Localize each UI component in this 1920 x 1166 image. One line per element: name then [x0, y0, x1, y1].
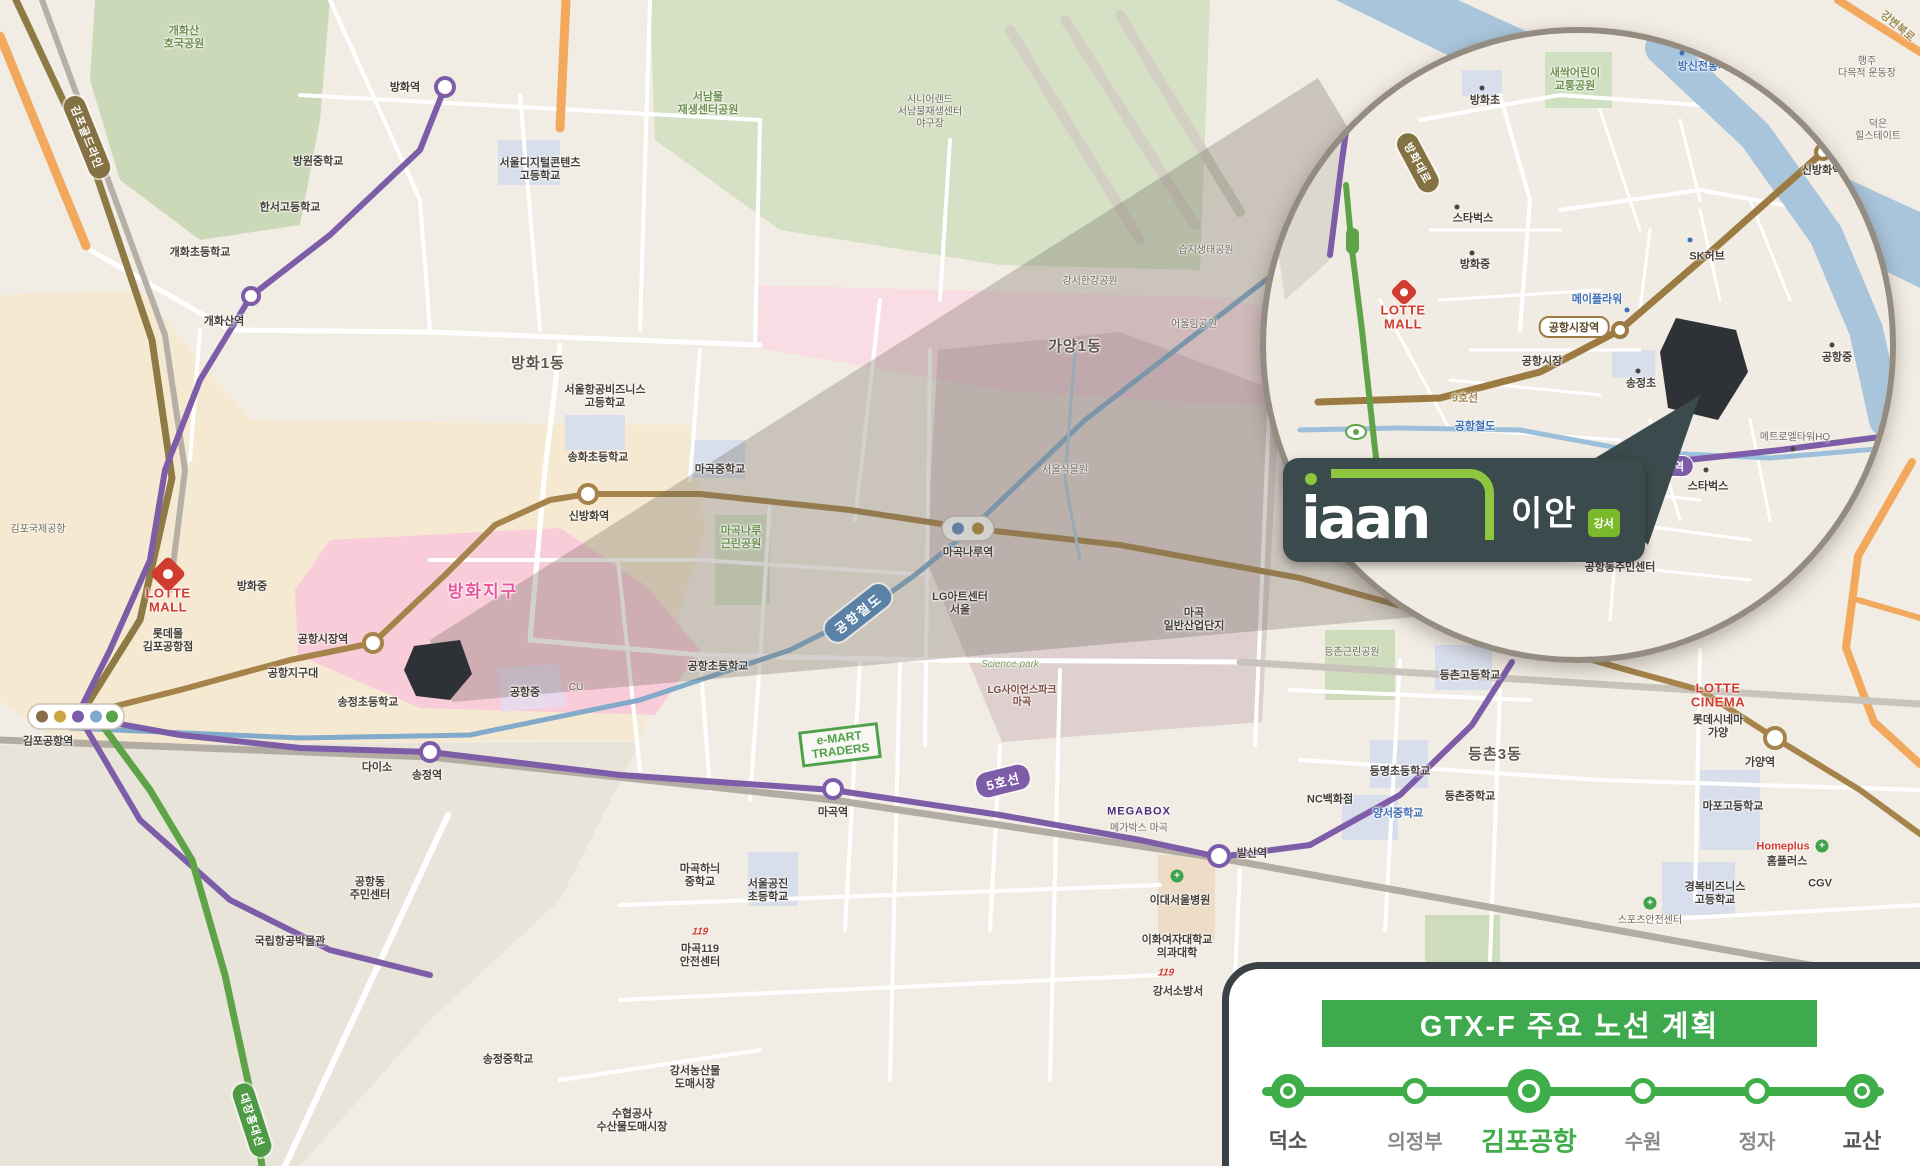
legend-station-uijeongbu: [1402, 1078, 1428, 1104]
gtx-legend-header: GTX-F 주요 노선 계획: [1322, 1000, 1817, 1047]
iaan-wordmark: iaan: [1301, 467, 1497, 553]
promo-map-stage: 개화산호국공원방원중학교한서고등학교개화초등학교개화산역방화역서울디지털콘텐츠고…: [0, 0, 1920, 1166]
legend-station-gimpo-airport-core: [1522, 1084, 1536, 1098]
legend-station-uijeongbu-label: 의정부: [1387, 1126, 1442, 1155]
legend-station-gyosan-label: 교산: [1843, 1125, 1882, 1155]
legend-station-gimpo-airport-label: 김포공항: [1481, 1122, 1577, 1159]
gtx-legend-title: GTX-F 주요 노선 계획: [1420, 1003, 1719, 1045]
legend-station-deokso-label: 덕소: [1269, 1125, 1308, 1155]
legend-station-jeongja-label: 정자: [1739, 1126, 1776, 1155]
legend-station-gyosan-core: [1857, 1086, 1867, 1096]
iaan-region-tag: 강서: [1588, 509, 1620, 537]
legend-station-jeongja: [1744, 1078, 1770, 1104]
legend-station-suwon: [1630, 1078, 1656, 1104]
legend-station-gimpo-airport: [1507, 1069, 1551, 1113]
legend-station-deokso-core: [1283, 1086, 1293, 1096]
iaan-brand-text: iaan: [1301, 489, 1428, 547]
iaan-korean-text: 이안: [1511, 486, 1578, 535]
legend-station-deokso: [1271, 1074, 1305, 1108]
iaan-brand-logo: iaan 이안 강서: [1283, 458, 1645, 562]
legend-station-suwon-label: 수원: [1625, 1126, 1662, 1155]
gtx-legend-box: GTX-F 주요 노선 계획 덕소의정부김포공항수원정자교산: [1222, 962, 1920, 1166]
legend-station-gyosan: [1845, 1074, 1879, 1108]
gtx-route-line: [1262, 1087, 1884, 1096]
